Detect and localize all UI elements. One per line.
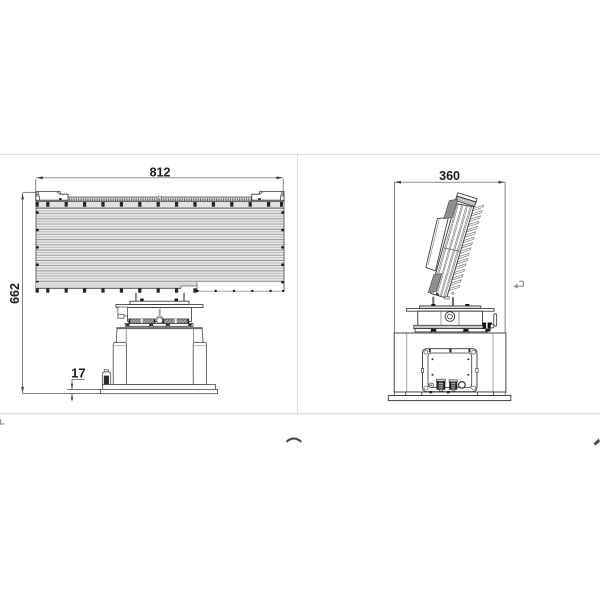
svg-text:812: 812 (150, 165, 171, 179)
svg-text:360: 360 (439, 169, 460, 183)
svg-text:662: 662 (8, 283, 22, 304)
svg-text:17: 17 (71, 366, 85, 381)
